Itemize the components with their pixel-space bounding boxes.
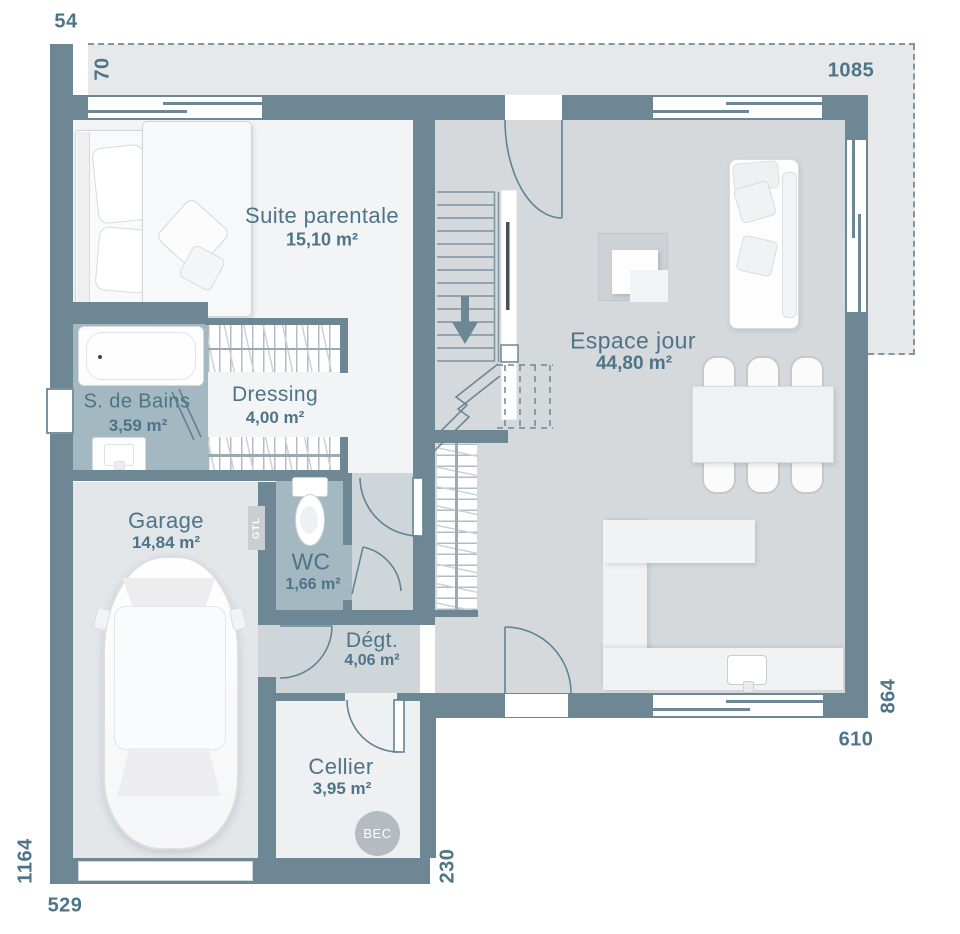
garage-name: Garage — [128, 508, 204, 534]
sdb-area: 3,59 m² — [109, 416, 168, 436]
wc-door-swing — [352, 547, 401, 594]
cellier-door-swing — [347, 700, 404, 752]
suite-name: Suite parentale — [245, 203, 399, 229]
stair-break-line — [429, 364, 500, 456]
degt-area: 4,06 m² — [344, 652, 399, 670]
dim-left-side: 1164 — [15, 838, 38, 883]
wc-area: 1,66 m² — [285, 576, 340, 594]
suite-area: 15,10 m² — [286, 230, 358, 251]
stair-handrail-bar — [506, 222, 510, 310]
dim-cellier-right: 230 — [437, 849, 460, 884]
dim-top-left: 54 — [54, 11, 77, 34]
sdb-name: S. de Bains — [84, 391, 191, 414]
degt-name: Dégt. — [346, 629, 398, 653]
stair-newel-post — [501, 345, 518, 362]
dim-bottom-left: 529 — [48, 895, 83, 918]
espace-name: Espace jour — [570, 328, 696, 355]
dressing-name: Dressing — [232, 383, 318, 407]
wc-name: WC — [291, 549, 330, 576]
dressing-area: 4,00 m² — [246, 408, 305, 428]
cellier-area: 3,95 m² — [313, 779, 372, 799]
garage-area: 14,84 m² — [132, 533, 200, 553]
dim-bottom-right: 610 — [839, 729, 874, 752]
dim-top-band: 70 — [92, 57, 115, 80]
dim-top-right: 1085 — [828, 60, 875, 83]
garage-degt-door-swing — [280, 626, 332, 678]
espace-area: 44,80 m² — [596, 353, 672, 375]
floor-plan: GTL BEC — [0, 0, 960, 934]
dim-right-side: 864 — [878, 679, 901, 714]
cellier-name: Cellier — [308, 754, 373, 780]
corridor-door-swing — [360, 478, 423, 536]
espace-bottom-door-swing — [505, 627, 571, 693]
doors-and-stairs-overlay — [0, 0, 960, 934]
stairs-down-arrow-icon — [452, 296, 478, 344]
